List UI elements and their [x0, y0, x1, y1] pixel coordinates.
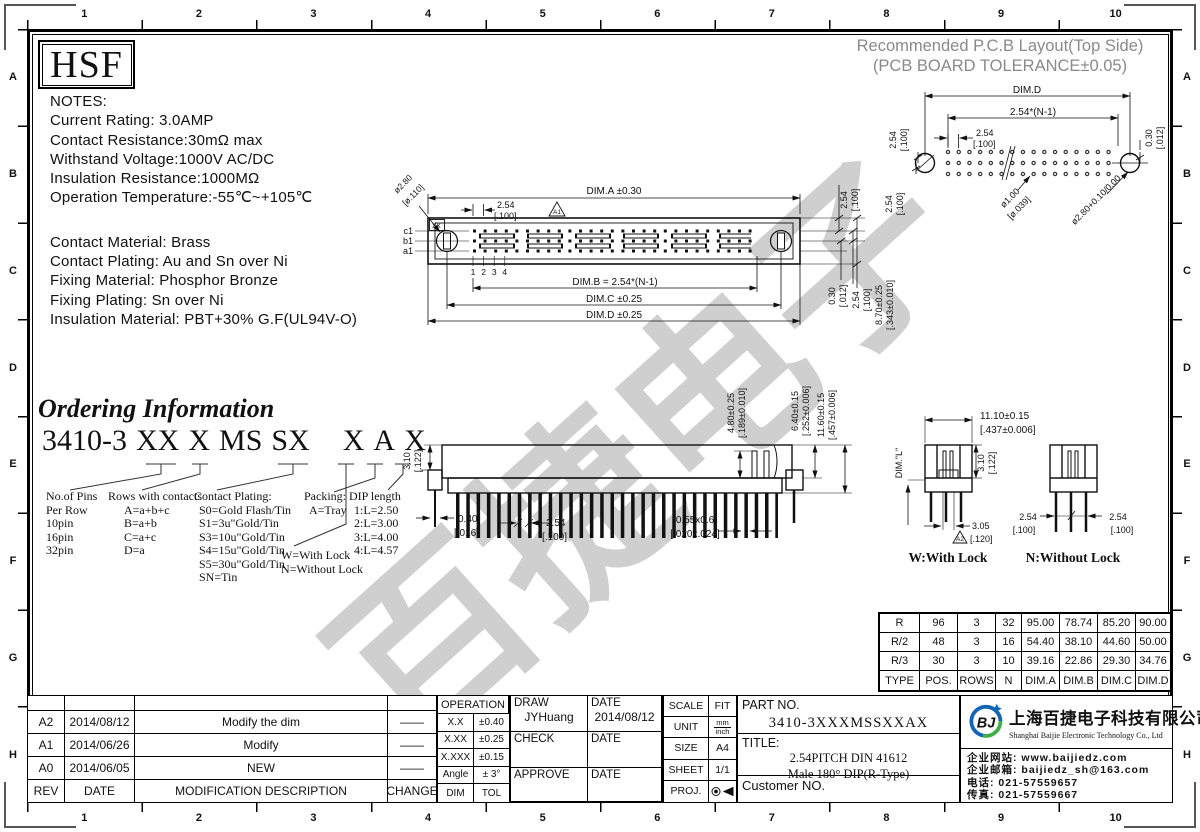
- scale-label: SCALE: [664, 696, 709, 717]
- ord-item: 4:L=4.57: [349, 544, 401, 558]
- ruler-number: 8: [829, 806, 944, 830]
- ordering-title: Ordering Information: [38, 394, 274, 424]
- table-cell: 95.00: [1022, 614, 1060, 633]
- ruler-number: 1: [27, 806, 142, 830]
- part-no-label: PART NO.: [742, 698, 955, 712]
- ord-item: S0=Gold Flash/Tin: [194, 504, 291, 518]
- sv-height-in: [.122]: [413, 450, 423, 473]
- part-seg: X: [188, 424, 210, 457]
- sv-v2-in: [.252±0.006]: [801, 386, 811, 436]
- table-cell: R/3: [880, 652, 920, 671]
- ev-width-in: [.437±0.006]: [980, 425, 1036, 436]
- company-names: 上海百捷电子科技有限公司 Shanghai Baijie Electronic …: [1009, 705, 1200, 740]
- ruler-number: 1: [27, 2, 142, 26]
- note-line: Current Rating: 3.0AMP: [50, 111, 357, 130]
- rev-cell: A1: [28, 734, 65, 757]
- part-no-section: PART NO. 3410-3XXXMSSXXAX: [738, 696, 959, 734]
- customer-label: Customer NO.: [742, 778, 955, 793]
- table-cell: 96: [920, 614, 958, 633]
- ord-item: 10pin: [46, 517, 97, 531]
- unit-label: UNIT: [664, 717, 709, 738]
- date-label: DATE: [591, 733, 621, 745]
- ev-pitch-l: 2.54: [1019, 512, 1037, 522]
- customer-section: Customer NO.: [738, 776, 959, 801]
- connector-top-view: A1 DIM.A ±0.30 2.54 [.100] XX ø2.80 [ø.1…: [395, 160, 895, 340]
- sv-body: [428, 445, 803, 493]
- approve-label: APPROVE: [514, 769, 570, 781]
- ordering-part-number: 3410-3XXXMSSXXAX: [42, 424, 435, 458]
- check-cell: CHECK: [511, 732, 588, 768]
- notes-block: NOTES: Current Rating: 3.0AMP Contact Re…: [50, 92, 357, 329]
- company-website: 企业网站: www.baijiedz.com: [967, 752, 1170, 764]
- rev-cell: [135, 696, 388, 711]
- ord-item: S5=30u"Gold/Tin: [194, 558, 291, 572]
- approve-cell: APPROVE: [511, 768, 588, 802]
- rev-cell: 2014/08/12: [65, 711, 135, 734]
- pcb-row-pitch2-in: [.100]: [895, 193, 905, 216]
- tv-row-a1: a1: [403, 246, 413, 256]
- ord-col-header: Contact Plating:: [194, 490, 291, 504]
- draw-date: 2014/08/12: [588, 710, 661, 724]
- ruler-number: 9: [944, 2, 1059, 26]
- check-label: CHECK: [514, 733, 554, 745]
- rev-cell: 2014/06/26: [65, 734, 135, 757]
- ruler-letter: E: [1, 416, 25, 513]
- ord-item: N=Without Lock: [281, 563, 363, 577]
- pcb-title-line2: (PCB BOARD TOLERANCE±0.05): [828, 56, 1172, 76]
- ruler-number: 6: [600, 806, 715, 830]
- table-header-cell: DIM.D: [1136, 671, 1170, 690]
- ruler-number: 2: [142, 806, 257, 830]
- tv-right-height: 8.70±0.25: [874, 285, 884, 325]
- ruler-letter: H: [1, 706, 25, 803]
- ruler-letter: C: [1, 223, 25, 320]
- tv-right-height-in: [.343±0.010]: [885, 280, 895, 330]
- pcb-dim-d-label: DIM.D: [1013, 85, 1041, 96]
- note-line: Fixing Plating: Sn over Ni: [50, 291, 357, 310]
- tv-dim-c: DIM.C ±0.25: [586, 294, 642, 305]
- size-value: A4: [709, 738, 736, 759]
- date-label: DATE: [591, 697, 621, 709]
- ruler-number: 3: [256, 806, 371, 830]
- rev-cell: NEW: [135, 757, 388, 780]
- tol-cell: X.XXX: [438, 749, 474, 767]
- size-label: SIZE: [664, 738, 709, 759]
- tv-rev-label: A1: [553, 209, 561, 216]
- tv-xx: XX: [432, 223, 441, 230]
- tol-cell: X.X: [438, 714, 474, 732]
- table-cell: 29.30: [1098, 652, 1136, 671]
- ord-item: S1=3u"Gold/Tin: [194, 517, 291, 531]
- tv-pin2: 2: [481, 267, 486, 277]
- table-cell: 38.10: [1060, 633, 1098, 652]
- ord-item: C=a+c: [108, 531, 202, 545]
- rev-header: REV: [28, 780, 65, 802]
- title-section: TITLE: 2.54PITCH DIN 41612 Male 180° DIP…: [738, 734, 959, 776]
- sv-v2: 6.40±0.15: [790, 391, 800, 431]
- pcb-row-pitch1: 2.54: [888, 131, 898, 149]
- ordering-col-packing: Packing: A=Tray: [304, 490, 347, 517]
- pcb-hole2-label: ø2.80+0.10/0.00: [1069, 173, 1123, 227]
- table-header-cell: ROWS: [958, 671, 996, 690]
- tv-right-edge-in: [.012]: [838, 285, 848, 308]
- ev-rev-label: A2: [956, 536, 964, 543]
- sv-v3: 11.60±0.15: [816, 393, 826, 437]
- table-cell: 78.74: [1060, 614, 1098, 633]
- tv-dim-d: DIM.D ±0.25: [586, 310, 642, 321]
- pcb-edge-label-in: [.012]: [1155, 127, 1165, 150]
- ord-item: A=Tray: [304, 504, 347, 518]
- hsf-logo: HSF: [38, 40, 135, 89]
- sv-pin-w: 0.40: [458, 514, 478, 525]
- ruler-letter: D: [1, 319, 25, 416]
- table-cell: 50.00: [1136, 633, 1170, 652]
- tol-cell: TOL: [474, 784, 509, 802]
- ord-item: B=a+b: [108, 517, 202, 531]
- tv-right-edge: 0.30: [827, 287, 837, 305]
- notes-title: NOTES:: [50, 92, 357, 111]
- ord-col-header: Rows with contacts: [108, 490, 202, 504]
- ev-rev-triangle: A2: [953, 531, 967, 543]
- tv-dim-a: DIM.A ±0.30: [587, 186, 642, 197]
- ruler-number: 7: [715, 806, 830, 830]
- tv-rev-triangle: A1: [549, 202, 565, 216]
- ruler-letter: A: [1, 29, 25, 126]
- ord-col-header: DIP length: [349, 490, 401, 504]
- pcb-pitch-label-in: [.100]: [973, 139, 996, 149]
- info-block: SCALEFIT UNIT mminch SIZEA4 SHEET1/1 PRO…: [663, 695, 737, 803]
- ruler-number: 5: [485, 2, 600, 26]
- ord-col-header: Packing:: [304, 490, 347, 504]
- table-cell: 48: [920, 633, 958, 652]
- ruler-number: 6: [600, 2, 715, 26]
- table-cell: 3: [958, 614, 996, 633]
- date-label: DATE: [591, 769, 621, 781]
- rev-cell: Modify: [135, 734, 388, 757]
- tv-pin3: 3: [492, 267, 497, 277]
- ruler-letter: F: [1, 513, 25, 610]
- tol-cell: DIM: [438, 784, 474, 802]
- tol-cell: X.XX: [438, 732, 474, 750]
- rev-cell: [388, 696, 436, 711]
- ord-item: D=a: [108, 544, 202, 558]
- logo-bj-text: BJ: [977, 715, 996, 731]
- ord-item: S3=10u"Gold/Tin: [194, 531, 291, 545]
- sv-v3-in: [.457±0.006]: [827, 390, 837, 440]
- ordering-col-pins: No.of Pins Per Row 10pin 16pin 32pin: [46, 490, 97, 558]
- rev-cell: A0: [28, 757, 65, 780]
- note-line: Operation Temperature:-55℃~+105℃: [50, 188, 357, 207]
- ev-height-in: [.122]: [987, 452, 997, 475]
- rev-cell: A2: [28, 711, 65, 734]
- table-header-cell: DIM.C: [1098, 671, 1136, 690]
- rev-cell: [65, 696, 135, 711]
- part-seg: SX: [271, 424, 309, 457]
- table-cell: 16: [996, 633, 1022, 652]
- drawing-sheet: 12345678910 12345678910 ABCDEFGH ABCDEFG…: [0, 0, 1200, 832]
- proj-label: PROJ.: [664, 781, 709, 802]
- connector-end-views: A2 11.10±0.15 [.437±0.006] DIM."L" 3.10 …: [880, 390, 1180, 580]
- ruler-number: 9: [944, 806, 1059, 830]
- table-cell: R/2: [880, 633, 920, 652]
- tv-right-pitch-in: [.100]: [850, 189, 860, 212]
- sv-v1: 4.80±0.25: [726, 393, 736, 433]
- sv-v1-in: [.189±0.010]: [737, 388, 747, 438]
- table-cell: R: [880, 614, 920, 633]
- hsf-logo-text: HSF: [50, 43, 123, 87]
- note-line: Contact Material: Brass: [50, 233, 357, 252]
- company-name-cn: 上海百捷电子科技有限公司: [1009, 705, 1200, 729]
- rev-cell: Modify the dim: [135, 711, 388, 734]
- note-line: Insulation Resistance:1000MΩ: [50, 169, 357, 188]
- ord-item: 1:L=2.50: [349, 504, 401, 518]
- company-name-en: Shanghai Baijie Electronic Technology Co…: [1009, 731, 1200, 740]
- pcb-pitch-label: 2.54: [976, 128, 994, 138]
- note-line: Fixing Material: Phosphor Bronze: [50, 271, 357, 290]
- tol-cell: ± 3°: [474, 767, 509, 785]
- ruler-number: 2: [142, 2, 257, 26]
- table-cell: 22.86: [1060, 652, 1098, 671]
- sv-pins: [435, 490, 794, 527]
- part-block: PART NO. 3410-3XXXMSSXXAX TITLE: 2.54PIT…: [737, 695, 960, 803]
- rev-cell: ——: [388, 757, 436, 780]
- ruler-number: 4: [371, 2, 486, 26]
- tv-right-pitch2: 2.54: [851, 291, 861, 309]
- pcb-title-line1: Recommended P.C.B Layout(Top Side): [828, 36, 1172, 56]
- note-line: Withstand Voltage:1000V AC/DC: [50, 150, 357, 169]
- table-cell: 90.00: [1136, 614, 1170, 633]
- sv-pin-w-in: [.016]: [454, 528, 479, 539]
- rev-cell: [28, 696, 65, 711]
- ruler-letter: B: [1, 126, 25, 223]
- table-header-cell: POS.: [920, 671, 958, 690]
- table-cell: 34.76: [1136, 652, 1170, 671]
- part-seg: 3410-3: [42, 424, 127, 457]
- tv-row-b1: b1: [403, 236, 413, 246]
- rev-cell: ——: [388, 734, 436, 757]
- ruler-bottom: 12345678910: [27, 806, 1173, 830]
- ord-item: S4=15u"Gold/Tin: [194, 544, 291, 558]
- ev-dim-l: DIM."L": [894, 448, 904, 478]
- ordering-col-plating: Contact Plating: S0=Gold Flash/Tin S1=3u…: [194, 490, 291, 585]
- ordering-col-rows: Rows with contacts A=a+b+c B=a+b C=a+c D…: [108, 490, 202, 558]
- ord-item: 32pin: [46, 544, 97, 558]
- part-no-value: 3410-3XXXMSSXXAX: [742, 715, 955, 732]
- ruler-letter: G: [1175, 610, 1199, 707]
- table-header-cell: DIM.B: [1060, 671, 1098, 690]
- ruler-top: 12345678910: [27, 2, 1173, 26]
- tv-dim-b: DIM.B = 2.54*(N-1): [572, 277, 657, 288]
- ruler-number: 7: [715, 2, 830, 26]
- connector-side-view: 3.10 [.122] 0.40 [.016] 2.54 [.100] 0.55…: [400, 385, 860, 580]
- note-line: Insulation Material: PBT+30% G.F(UL94V-O…: [50, 310, 357, 329]
- scale-value: FIT: [709, 696, 736, 717]
- table-cell: 54.40: [1022, 633, 1060, 652]
- tv-contacts: [473, 231, 757, 251]
- ev-width: 11.10±0.15: [980, 411, 1030, 422]
- ord-item: 3:L=4.00: [349, 531, 401, 545]
- ev-lock-w-in: [.120]: [970, 534, 993, 544]
- ord-item: 16pin: [46, 531, 97, 545]
- ordering-col-dip: DIP length 1:L=2.50 2:L=3.00 3:L=4.00 4:…: [349, 490, 401, 558]
- company-logo: BJ: [964, 702, 1006, 742]
- draw-date-cell: DATE2014/08/12: [588, 696, 662, 732]
- company-header: BJ 上海百捷电子科技有限公司 Shanghai Baijie Electron…: [961, 696, 1172, 749]
- tv-right-pitch2-in: [.100]: [862, 289, 872, 312]
- sheet-label: SHEET: [664, 760, 709, 781]
- part-seg: MS: [219, 424, 262, 457]
- company-phone: 电话: 021-57559657: [967, 777, 1170, 789]
- tol-cell: Angle: [438, 767, 474, 785]
- logo-graphic: BJ: [971, 704, 1001, 736]
- rev-header: CHANGE: [388, 780, 436, 802]
- sv-pin-sect: 0.55x0.6: [676, 515, 715, 526]
- table-header-cell: N: [996, 671, 1022, 690]
- table-cell: 44.60: [1098, 633, 1136, 652]
- ruler-number: 3: [256, 2, 371, 26]
- tol-cell: ±0.25: [474, 732, 509, 750]
- ruler-number: 10: [1058, 2, 1173, 26]
- tv-right-pitch: 2.54: [839, 191, 849, 209]
- tolerance-table: OPERATION X.X±0.40 X.XX±0.25 X.XXX±0.15 …: [437, 695, 510, 803]
- rev-header: MODIFICATION DESCRIPTION: [135, 780, 388, 802]
- draw-label: DRAW: [514, 697, 549, 709]
- ord-item: Per Row: [46, 504, 97, 518]
- sv-pitch: 2.54: [546, 518, 566, 529]
- table-cell: 3: [958, 633, 996, 652]
- table-cell: 3: [958, 652, 996, 671]
- check-date-cell: DATE: [588, 732, 662, 768]
- table-header-cell: DIM.A: [1022, 671, 1060, 690]
- ruler-number: 4: [371, 806, 486, 830]
- tv-pitch-in: [.100]: [494, 211, 517, 221]
- rev-header: DATE: [65, 780, 135, 802]
- unit-fraction: mminch: [714, 719, 731, 736]
- ruler-number: 10: [1058, 806, 1173, 830]
- rev-cell: ——: [388, 711, 436, 734]
- dimension-table: R9633295.0078.7485.2090.00 R/24831654.40…: [878, 612, 1172, 692]
- ev-n-body: [1050, 445, 1097, 532]
- table-cell: 39.16: [1022, 652, 1060, 671]
- ruler-left: ABCDEFGH: [1, 29, 25, 803]
- tv-pitch: 2.54: [497, 200, 515, 210]
- pcb-layout-title: Recommended P.C.B Layout(Top Side) (PCB …: [828, 36, 1172, 76]
- company-contact: 企业网站: www.baijiedz.com 企业邮箱: baijiedz_sh…: [961, 749, 1172, 802]
- tol-header: OPERATION: [438, 696, 509, 714]
- table-cell: 85.20: [1098, 614, 1136, 633]
- ord-item: 2:L=3.00: [349, 517, 401, 531]
- pcb-row-pitch1-in: [.100]: [899, 129, 909, 152]
- ord-item: SN=Tin: [194, 571, 291, 585]
- rev-cell: 2014/06/05: [65, 757, 135, 780]
- tol-cell: ±0.15: [474, 749, 509, 767]
- unit-inch: inch: [716, 728, 730, 736]
- tv-pin4: 4: [502, 267, 507, 277]
- tv-row-c1: c1: [403, 226, 413, 236]
- pcb-pitch-n-label: 2.54*(N-1): [1010, 107, 1056, 118]
- sv-pitch-in: [.100]: [542, 532, 567, 543]
- ev-pitch-r: 2.54: [1109, 512, 1127, 522]
- table-cell: 30: [920, 652, 958, 671]
- ev-lock-w: 3.05: [972, 521, 990, 531]
- part-seg: A: [373, 424, 395, 457]
- tv-pin1: 1: [471, 267, 476, 277]
- sv-pin-sect-in: [.020x.024]: [670, 529, 720, 540]
- company-fax: 传真: 021-57559667: [967, 789, 1170, 801]
- ev-without-lock-label: N:Without Lock: [1026, 550, 1121, 565]
- ev-with-lock-label: W:With Lock: [909, 550, 988, 565]
- ord-col-header: No.of Pins: [46, 490, 97, 504]
- ord-item: A=a+b+c: [108, 504, 202, 518]
- ruler-letter: G: [1, 610, 25, 707]
- title-label: TITLE:: [742, 736, 955, 750]
- company-email: 企业邮箱: baijiedz_sh@163.com: [967, 764, 1170, 776]
- ev-height: 3.10: [976, 454, 986, 472]
- table-cell: 10: [996, 652, 1022, 671]
- note-line: Contact Plating: Au and Sn over Ni: [50, 252, 357, 271]
- unit-value: mminch: [709, 717, 736, 738]
- company-block: BJ 上海百捷电子科技有限公司 Shanghai Baijie Electron…: [960, 695, 1173, 803]
- sv-height: 3.10: [402, 452, 412, 470]
- note-line: Contact Resistance:30mΩ max: [50, 131, 357, 150]
- tol-cell: ±0.40: [474, 714, 509, 732]
- draw-cell: DRAWJYHuang: [511, 696, 588, 732]
- approve-date-cell: DATE: [588, 768, 662, 802]
- pcb-edge-label: 0.30: [1144, 129, 1154, 147]
- draw-name: JYHuang: [511, 710, 587, 724]
- revision-table: A22014/08/12Modify the dim—— A12014/06/2…: [27, 695, 437, 803]
- projection-symbol: [710, 785, 736, 798]
- table-header-cell: TYPE: [880, 671, 920, 690]
- table-cell: 32: [996, 614, 1022, 633]
- ev-pitch-l-in: [.100]: [1013, 525, 1036, 535]
- ruler-number: 5: [485, 806, 600, 830]
- ev-w-body: [925, 445, 972, 522]
- sheet-value: 1/1: [709, 760, 736, 781]
- proj-value: [709, 781, 736, 802]
- pcb-pads: [948, 152, 1118, 174]
- title-line1: 2.54PITCH DIN 41612: [742, 751, 955, 766]
- part-seg: X: [343, 424, 365, 457]
- ev-pitch-r-in: [.100]: [1111, 525, 1134, 535]
- part-seg: XX: [136, 424, 179, 457]
- signature-block: DRAWJYHuang DATE2014/08/12 CHECK DATE AP…: [510, 695, 663, 803]
- ruler-number: 8: [829, 2, 944, 26]
